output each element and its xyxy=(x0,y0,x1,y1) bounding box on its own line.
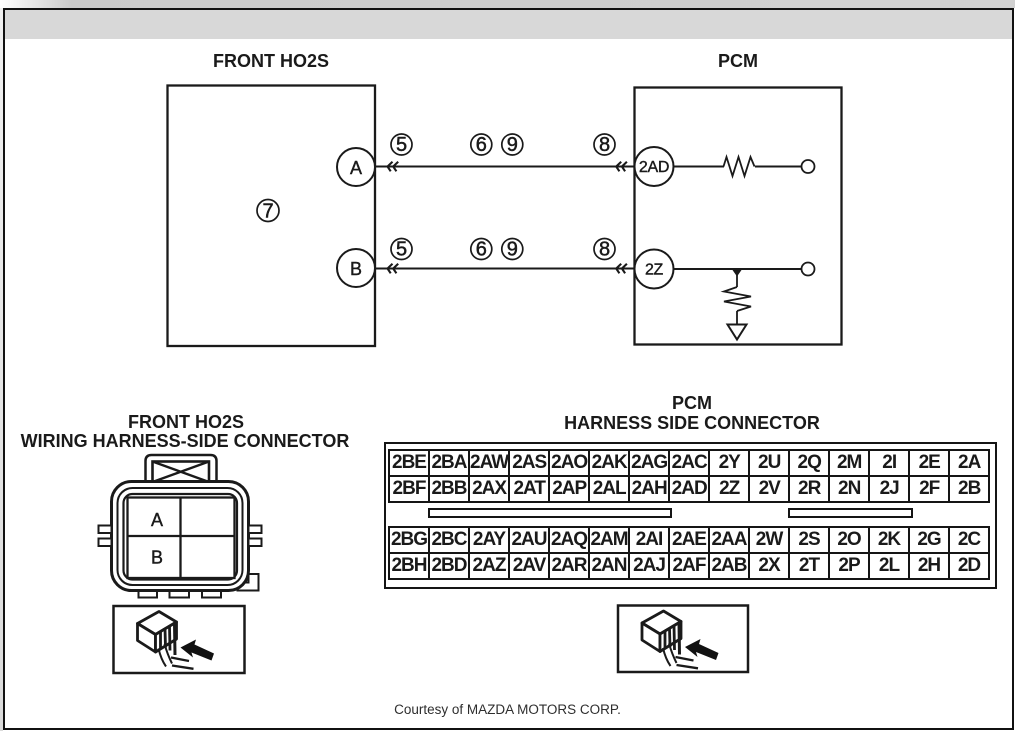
svg-text:6: 6 xyxy=(476,134,487,156)
svg-text:B: B xyxy=(151,548,163,568)
svg-text:7: 7 xyxy=(262,201,273,223)
svg-text:A: A xyxy=(151,510,163,530)
svg-text:8: 8 xyxy=(599,134,610,156)
svg-text:2Z: 2Z xyxy=(645,262,664,279)
svg-text:2AD: 2AD xyxy=(639,159,669,176)
svg-text:5: 5 xyxy=(396,134,407,156)
svg-text:8: 8 xyxy=(599,239,610,261)
svg-text:B: B xyxy=(350,259,362,279)
svg-text:A: A xyxy=(350,158,362,178)
svg-text:6: 6 xyxy=(476,239,487,261)
svg-text:5: 5 xyxy=(396,239,407,261)
svg-text:9: 9 xyxy=(507,239,518,261)
svg-text:9: 9 xyxy=(507,134,518,156)
